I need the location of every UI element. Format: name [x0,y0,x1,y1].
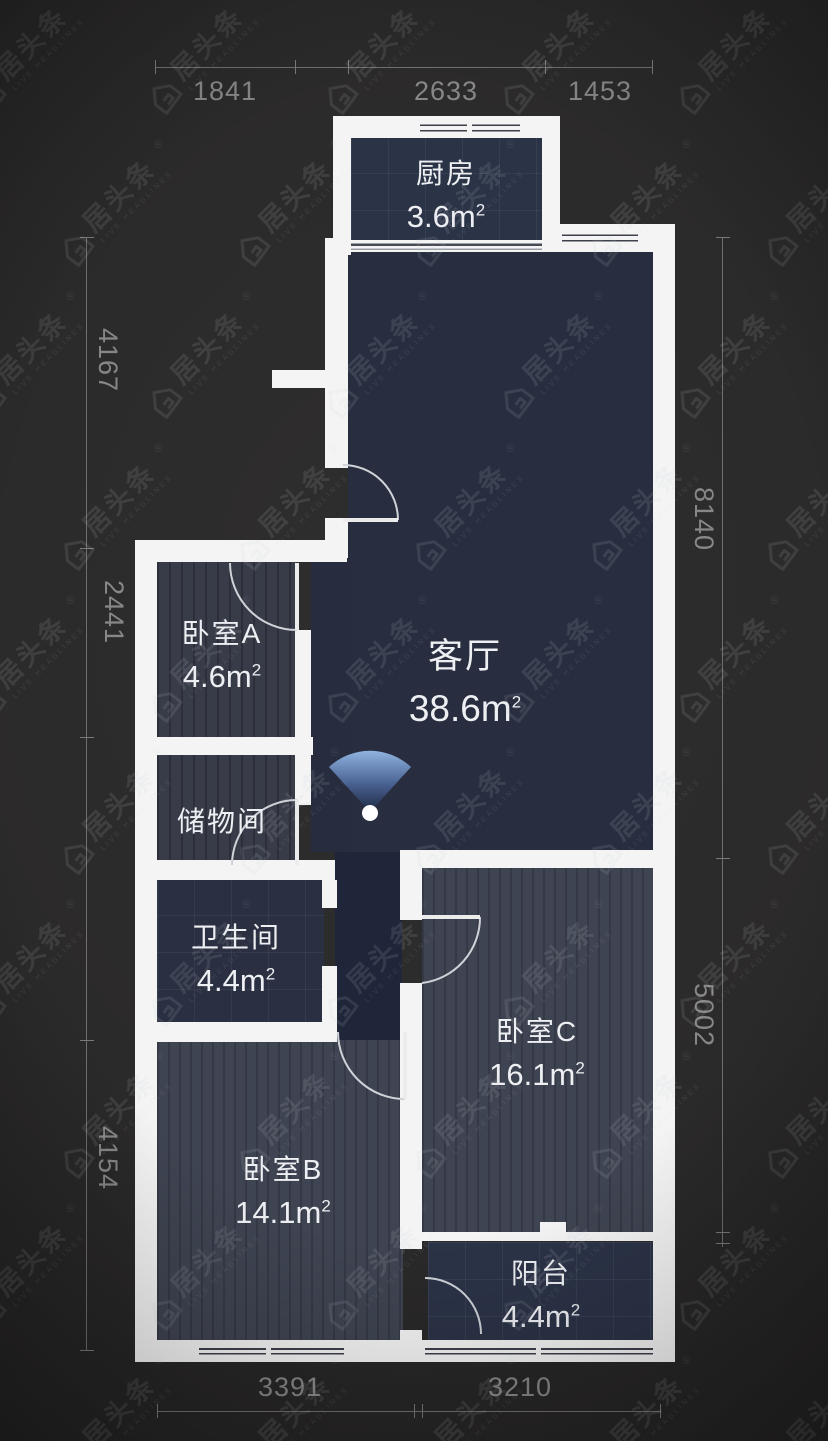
room-living-area-2 [311,558,351,852]
watermark-subtitle: LIVE HEADLINES [12,1233,87,1308]
watermark: 居头条 LIVE HEADLINES ® [665,277,812,424]
dim-line-right [722,237,723,1247]
registered-mark: ® [64,898,78,912]
registered-mark: ® [680,1354,694,1368]
watermark-brand: 居头条 [0,604,79,693]
dim-label-top-1: 1841 [193,76,257,107]
watermark-subtitle: LIVE HEADLINES [716,321,791,396]
room-name: 卫生间 [191,916,281,956]
house-logo-icon [0,984,12,1032]
house-logo-icon [668,680,716,728]
watermark-subtitle: LIVE HEADLINES [804,473,828,548]
wall [135,540,157,1362]
registered-mark: ® [64,290,78,304]
watermark-brand: 居头条 [78,452,167,541]
dim-label-right-2: 5002 [688,983,719,1047]
window [199,1345,344,1358]
house-logo-icon [0,680,12,728]
room-living-area [348,250,655,852]
floor-plan-canvas: 厨房 3.6m2 客厅 38.6m2 卧室A 4.6m2 储物间 卫生间 4.4… [0,0,828,1441]
house-logo-icon [52,832,100,880]
window-mullion [467,121,472,135]
room-name: 卧室B [235,1148,331,1188]
watermark: 居头条 LIVE HEADLINES ® [665,1189,812,1336]
wall [322,880,337,908]
dim-label-right-1: 8140 [688,487,719,551]
watermark-brand: 居头条 [782,1060,828,1149]
room-label-balcony: 阳台 4.4m2 [502,1252,580,1335]
wall [325,238,348,468]
watermark-brand: 居头条 [694,1212,783,1301]
room-area: 14.1m2 [235,1195,331,1231]
watermark-subtitle: LIVE HEADLINES [12,929,87,1004]
house-logo-icon [228,224,276,272]
house-logo-icon [668,1288,716,1336]
watermark-subtitle: LIVE HEADLINES [804,777,828,852]
watermark-brand: 居头条 [782,1364,828,1441]
dim-label-left-3: 4154 [92,1126,123,1190]
room-label-bedroom-a: 卧室A 4.6m2 [182,612,263,695]
wall [295,630,311,737]
room-area: 4.4m2 [502,1299,580,1335]
watermark-subtitle: LIVE HEADLINES [628,1385,703,1441]
registered-mark: ® [768,594,782,608]
house-logo-icon [0,1288,12,1336]
window-pass-through [351,240,542,252]
window [562,231,638,245]
watermark-subtitle: LIVE HEADLINES [12,321,87,396]
watermark-brand: 居头条 [78,1364,167,1441]
watermark: 居头条 LIVE HEADLINES ® [0,0,109,121]
watermark-brand: 居头条 [694,604,783,693]
room-name: 客厅 [409,628,521,679]
dim-label-left-2: 2441 [98,580,129,644]
watermark-brand: 居头条 [166,0,255,85]
room-label-bedroom-b: 卧室B 14.1m2 [235,1148,331,1231]
watermark-brand: 居头条 [518,0,607,85]
watermark-brand: 居头条 [782,452,828,541]
wall [135,860,335,880]
dim-line-top [155,67,652,68]
watermark-subtitle: LIVE HEADLINES [716,625,791,700]
registered-mark: ® [768,898,782,912]
house-logo-icon [668,72,716,120]
dim-label-bottom-1: 3391 [258,1372,322,1403]
room-area: 38.6m2 [409,688,521,730]
room-area: 4.6m2 [182,659,263,695]
room-label-kitchen: 厨房 3.6m2 [407,152,485,235]
wall-stub [272,370,325,388]
watermark-subtitle: LIVE HEADLINES [716,929,791,1004]
watermark-subtitle: LIVE HEADLINES [100,169,175,244]
room-name: 储物间 [177,800,267,840]
wall-thin [422,1232,653,1241]
room-area: 3.6m2 [407,199,485,235]
registered-mark: ® [152,442,166,456]
dim-line-left [86,237,87,1350]
wall [400,983,422,1249]
room-label-bedroom-c: 卧室C 16.1m2 [489,1010,585,1093]
window-mullion [266,1345,271,1358]
watermark-subtitle: LIVE HEADLINES [804,169,828,244]
watermark-subtitle: LIVE HEADLINES [12,625,87,700]
watermark: 居头条 LIVE HEADLINES ® [665,0,812,121]
wall [400,850,653,868]
wall [400,1330,422,1362]
room-name: 卧室C [489,1010,585,1050]
registered-mark: ® [64,1202,78,1216]
corridor-area [335,852,402,1044]
watermark-brand: 居头条 [342,0,431,85]
watermark: 居头条 LIVE HEADLINES ® [753,429,828,576]
watermark: 居头条 LIVE HEADLINES ® [753,1341,828,1441]
house-logo-icon [756,1136,804,1184]
watermark: 居头条 LIVE HEADLINES ® [0,1189,109,1336]
watermark: 居头条 LIVE HEADLINES ® [0,581,109,728]
house-logo-icon [0,376,12,424]
watermark-subtitle: LIVE HEADLINES [804,1385,828,1441]
watermark-brand: 居头条 [0,908,79,997]
registered-mark: ® [680,442,694,456]
dim-label-bottom-2: 3210 [488,1372,552,1403]
wall [325,518,348,558]
watermark-brand: 居头条 [254,148,343,237]
dim-line-bottom [157,1411,660,1412]
registered-mark: ® [680,138,694,152]
watermark: 居头条 LIVE HEADLINES ® [753,1037,828,1184]
watermark: 居头条 LIVE HEADLINES ® [753,125,828,272]
room-label-living: 客厅 38.6m2 [409,628,521,730]
house-logo-icon [316,72,364,120]
house-logo-icon [756,528,804,576]
house-logo-icon [140,72,188,120]
house-logo-icon [140,376,188,424]
watermark: 居头条 LIVE HEADLINES ® [0,885,109,1032]
watermark-brand: 居头条 [606,1364,695,1441]
watermark-subtitle: LIVE HEADLINES [100,473,175,548]
wall [135,737,313,755]
window-mullion [536,1345,541,1358]
watermark-subtitle: LIVE HEADLINES [804,1081,828,1156]
watermark-brand: 居头条 [166,300,255,389]
room-area: 16.1m2 [489,1057,585,1093]
registered-mark: ® [64,594,78,608]
wall [653,224,675,1362]
wall [135,1022,337,1042]
wall [322,966,337,1024]
watermark-brand: 居头条 [782,148,828,237]
room-name: 厨房 [407,152,485,192]
dim-label-left-1: 4167 [92,328,123,392]
watermark-subtitle: LIVE HEADLINES [100,1385,175,1441]
watermark-brand: 居头条 [78,148,167,237]
room-name: 阳台 [502,1252,580,1292]
wall [400,850,422,920]
house-logo-icon [52,224,100,272]
house-logo-icon [0,72,12,120]
registered-mark: ® [680,746,694,760]
house-logo-icon [52,528,100,576]
watermark: 居头条 LIVE HEADLINES ® [753,733,828,880]
room-name: 卧室A [182,612,263,652]
house-logo-icon [668,376,716,424]
house-logo-icon [756,832,804,880]
registered-mark: ® [680,1050,694,1064]
registered-mark: ® [768,1202,782,1216]
watermark-brand: 居头条 [0,0,79,85]
dim-label-top-2: 2633 [414,76,478,107]
watermark: 居头条 LIVE HEADLINES ® [137,277,284,424]
wall [295,755,311,805]
watermark-subtitle: LIVE HEADLINES [188,321,263,396]
watermark-subtitle: LIVE HEADLINES [716,1233,791,1308]
dim-label-top-3: 1453 [568,76,632,107]
watermark-brand: 居头条 [0,1212,79,1301]
watermark: 居头条 LIVE HEADLINES ® [49,125,196,272]
watermark: 居头条 LIVE HEADLINES ® [665,581,812,728]
watermark-brand: 居头条 [0,300,79,389]
watermark-subtitle: LIVE HEADLINES [12,17,87,92]
watermark-brand: 居头条 [694,300,783,389]
watermark-subtitle: LIVE HEADLINES [716,17,791,92]
registered-mark: ® [152,138,166,152]
room-area: 4.4m2 [191,963,281,999]
house-logo-icon [756,224,804,272]
registered-mark: ® [240,290,254,304]
watermark-brand: 居头条 [782,756,828,845]
registered-mark: ® [768,290,782,304]
watermark-brand: 居头条 [694,0,783,85]
wall [135,540,347,562]
room-label-bathroom: 卫生间 4.4m2 [191,916,281,999]
room-label-storage: 储物间 [177,800,267,840]
house-logo-icon [492,72,540,120]
wall [333,116,351,255]
